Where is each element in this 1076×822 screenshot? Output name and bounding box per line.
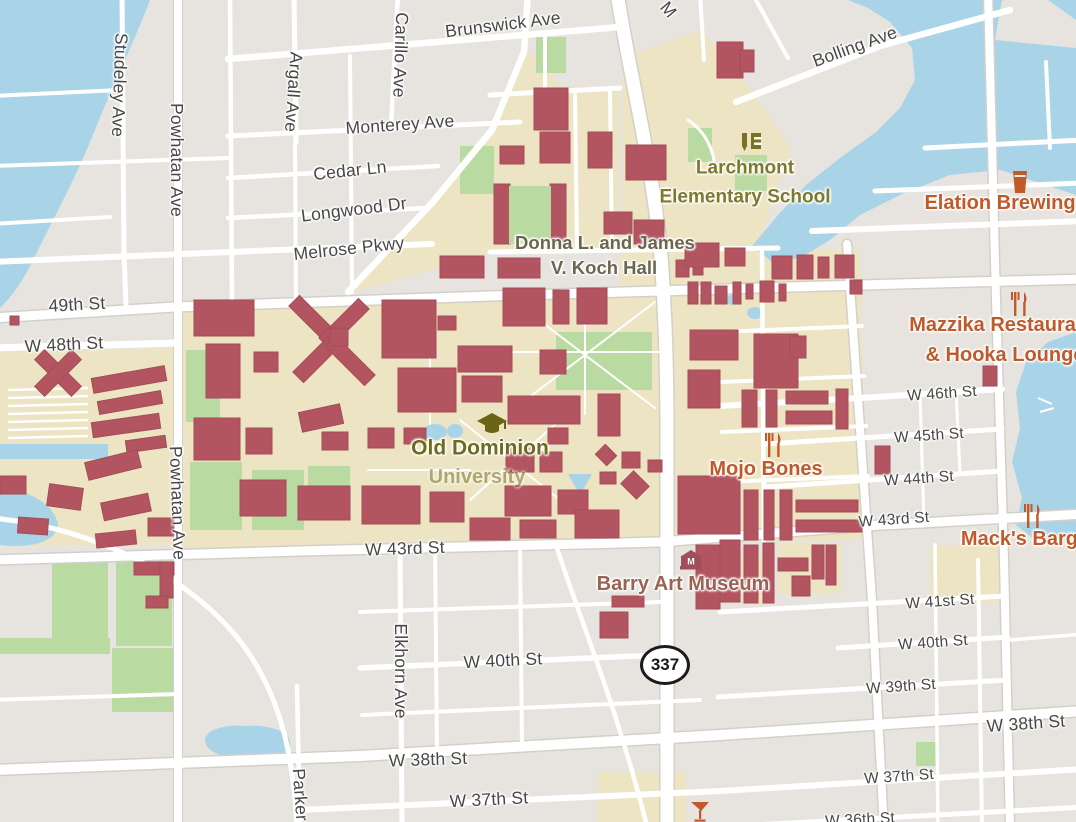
poi-label-mazzika-line1[interactable]: Mazzika Restaurant <box>909 315 1076 335</box>
svg-text:M: M <box>687 557 695 567</box>
street-label-w-39th-st: W 39th St <box>866 677 937 697</box>
street-label-studeley-ave: Studeley Ave <box>108 33 129 138</box>
street-label-49th-st: 49th St <box>48 295 106 315</box>
street-label-argall-ave: Argall Ave <box>281 51 304 133</box>
street-label-elkhorn-ave: Elkhorn Ave <box>391 623 409 718</box>
street-label-powhatan-ave-north: Powhatan Ave <box>167 103 185 217</box>
street-label-longwood-dr: Longwood Dr <box>300 195 408 225</box>
poi-label-koch-hall-line2[interactable]: V. Koch Hall <box>551 259 657 278</box>
poi-label-barry-art-museum[interactable]: Barry Art Museum <box>597 574 770 594</box>
street-label-w-43rd-st-east: W 43rd St <box>858 510 930 530</box>
street-label-parker-ave: Parker Ave <box>289 768 313 822</box>
street-label-w-46th-st: W 46th St <box>907 384 978 404</box>
street-label-monterey-ave: Monterey Ave <box>345 112 455 137</box>
poi-label-koch-hall-line1[interactable]: Donna L. and James <box>515 234 695 253</box>
route-337-shield: 337 <box>640 645 690 685</box>
street-label-w-36th-st: W 36th St <box>825 810 896 822</box>
poi-label-larchmont-line2[interactable]: Elementary School <box>659 188 830 207</box>
street-label-w-40th-st-center: W 40th St <box>463 650 542 672</box>
street-label-fragment-m: M <box>657 0 680 21</box>
street-label-w-38th-st-east: W 38th St <box>986 713 1066 736</box>
poi-label-odu-line2[interactable]: University <box>429 467 526 487</box>
street-label-w-44th-st: W 44th St <box>884 469 955 489</box>
street-label-powhatan-ave-south: Powhatan Ave <box>166 446 187 561</box>
map-canvas[interactable]: Brunswick AveBolling AveStudeley AvePowh… <box>0 0 1076 822</box>
poi-label-mojo-bones[interactable]: Mojo Bones <box>709 459 822 479</box>
poi-label-odu-line1[interactable]: Old Dominion <box>411 438 549 459</box>
street-label-w-37th-st-center: W 37th St <box>449 789 528 811</box>
street-label-cedar-ln: Cedar Ln <box>312 158 387 183</box>
poi-label-elation-brewing[interactable]: Elation Brewing <box>924 193 1075 213</box>
street-label-w-41st-st: W 41st St <box>905 592 975 612</box>
map-labels: Brunswick AveBolling AveStudeley AvePowh… <box>0 0 1076 822</box>
street-label-w-45th-st: W 45th St <box>894 426 965 446</box>
street-label-w-48th-st: W 48th St <box>24 334 103 356</box>
poi-label-mazzika-line2[interactable]: & Hooka Lounge <box>926 345 1076 365</box>
street-label-carillo-ave: Carillo Ave <box>390 12 410 98</box>
poi-label-larchmont-line1[interactable]: Larchmont <box>696 159 794 178</box>
street-label-w-40th-st-east: W 40th St <box>898 633 969 653</box>
street-label-w-38th-st-center: W 38th St <box>388 750 467 770</box>
street-label-brunswick-ave: Brunswick Ave <box>444 9 561 41</box>
street-label-w-43rd-st-center: W 43rd St <box>365 539 445 559</box>
street-label-bolling-ave: Bolling Ave <box>810 24 899 71</box>
poi-label-macks-barge[interactable]: Mack's Barge <box>961 529 1076 549</box>
street-label-melrose-pkwy: Melrose Pkwy <box>293 234 406 263</box>
street-label-w-37th-st-east: W 37th St <box>864 767 935 787</box>
